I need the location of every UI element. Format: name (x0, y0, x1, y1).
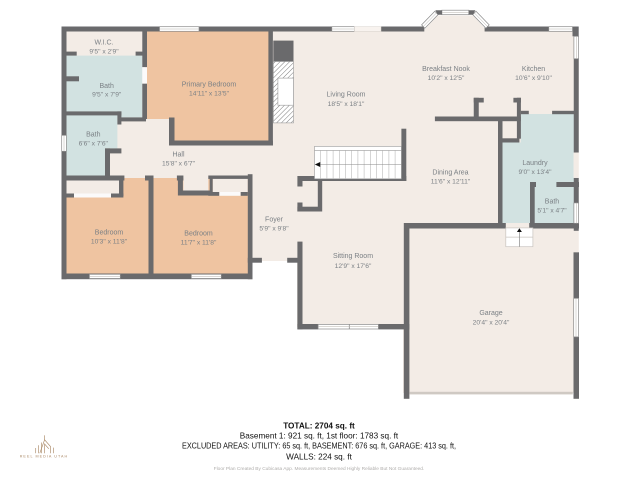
svg-text:Primary Bedroom: Primary Bedroom (182, 82, 237, 89)
svg-text:10'6" x 9'10": 10'6" x 9'10" (515, 75, 552, 82)
svg-text:Laundry: Laundry (522, 160, 548, 167)
svg-text:Garage: Garage (479, 310, 502, 317)
svg-text:Breakfast Nook: Breakfast Nook (422, 66, 470, 73)
svg-text:Bath: Bath (545, 199, 560, 206)
svg-text:Foyer: Foyer (265, 217, 284, 224)
svg-text:EXCLUDED AREAS: UTILITY: 65 sq: EXCLUDED AREAS: UTILITY: 65 sq. ft, BASE… (182, 442, 456, 451)
svg-text:Basement 1: 921 sq. ft, 1st fl: Basement 1: 921 sq. ft, 1st floor: 1783 … (240, 432, 399, 441)
svg-text:Bedroom: Bedroom (95, 230, 124, 237)
svg-text:5'1" x 4'7": 5'1" x 4'7" (537, 207, 567, 214)
svg-text:11'7" x 11'8": 11'7" x 11'8" (181, 239, 217, 246)
svg-text:11'6" x 12'11": 11'6" x 12'11" (431, 179, 471, 186)
svg-text:6'6" x 7'6": 6'6" x 7'6" (79, 141, 109, 148)
svg-text:9'0" x 13'4": 9'0" x 13'4" (519, 169, 553, 176)
svg-text:15'8" x 6'7": 15'8" x 6'7" (162, 160, 196, 167)
svg-text:10'3" x 11'8": 10'3" x 11'8" (91, 239, 128, 246)
svg-text:Sitting Room: Sitting Room (333, 253, 373, 260)
svg-text:REEL MEDIA UTAH: REEL MEDIA UTAH (20, 455, 69, 459)
svg-text:18'5" x 18'1": 18'5" x 18'1" (328, 101, 365, 108)
svg-text:20'4" x 20'4": 20'4" x 20'4" (473, 319, 510, 326)
svg-text:TOTAL: 2704 sq. ft: TOTAL: 2704 sq. ft (283, 422, 355, 431)
svg-text:W.I.C.: W.I.C. (94, 39, 113, 46)
svg-text:Hall: Hall (172, 151, 185, 158)
svg-text:9'5" x 2'9": 9'5" x 2'9" (89, 48, 119, 55)
svg-text:Bedroom: Bedroom (184, 230, 213, 237)
svg-text:Kitchen: Kitchen (522, 66, 545, 73)
svg-text:5'9" x 9'8": 5'9" x 9'8" (259, 226, 289, 233)
svg-text:Living Room: Living Room (327, 92, 366, 99)
svg-text:Bath: Bath (86, 132, 101, 139)
svg-text:Dining Area: Dining Area (432, 170, 468, 177)
svg-text:WALLS: 224 sq. ft: WALLS: 224 sq. ft (286, 452, 352, 461)
svg-text:Bath: Bath (99, 83, 114, 90)
svg-text:12'9" x 17'6": 12'9" x 17'6" (335, 263, 372, 270)
svg-text:9'5" x 7'9": 9'5" x 7'9" (92, 92, 122, 99)
svg-text:10'2" x 12'5": 10'2" x 12'5" (428, 75, 465, 82)
svg-text:Floor Plan Created By Cubicasa: Floor Plan Created By Cubicasa App. Meas… (214, 466, 425, 472)
svg-text:14'11" x 13'5": 14'11" x 13'5" (189, 91, 230, 98)
